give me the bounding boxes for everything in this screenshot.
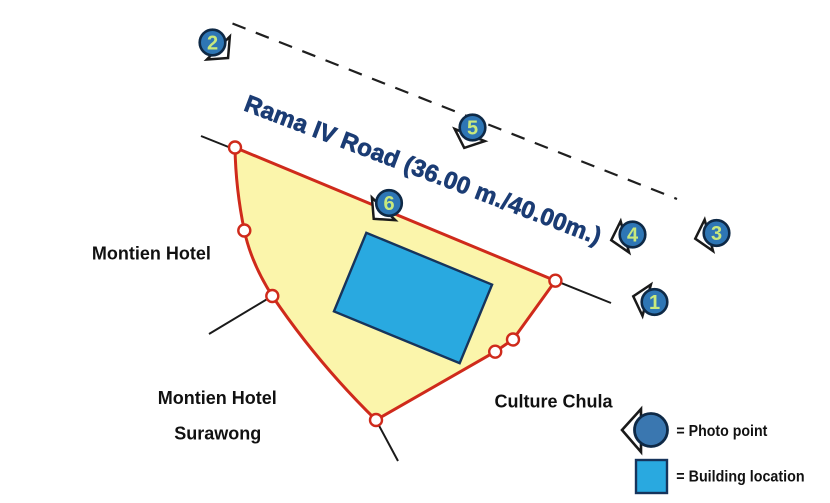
svg-text:6: 6 [383,193,394,215]
svg-text:2: 2 [207,33,218,55]
svg-text:= Building location: = Building location [676,469,804,486]
svg-text:= Photo point: = Photo point [676,423,768,440]
svg-text:3: 3 [711,223,722,245]
svg-text:1: 1 [649,292,660,314]
svg-text:4: 4 [627,225,639,247]
svg-text:Culture Chula: Culture Chula [494,392,613,412]
svg-text:Montien Hotel: Montien Hotel [158,388,277,408]
svg-text:5: 5 [467,118,478,140]
svg-text:Surawong: Surawong [174,424,261,444]
svg-text:Montien Hotel: Montien Hotel [92,244,211,264]
